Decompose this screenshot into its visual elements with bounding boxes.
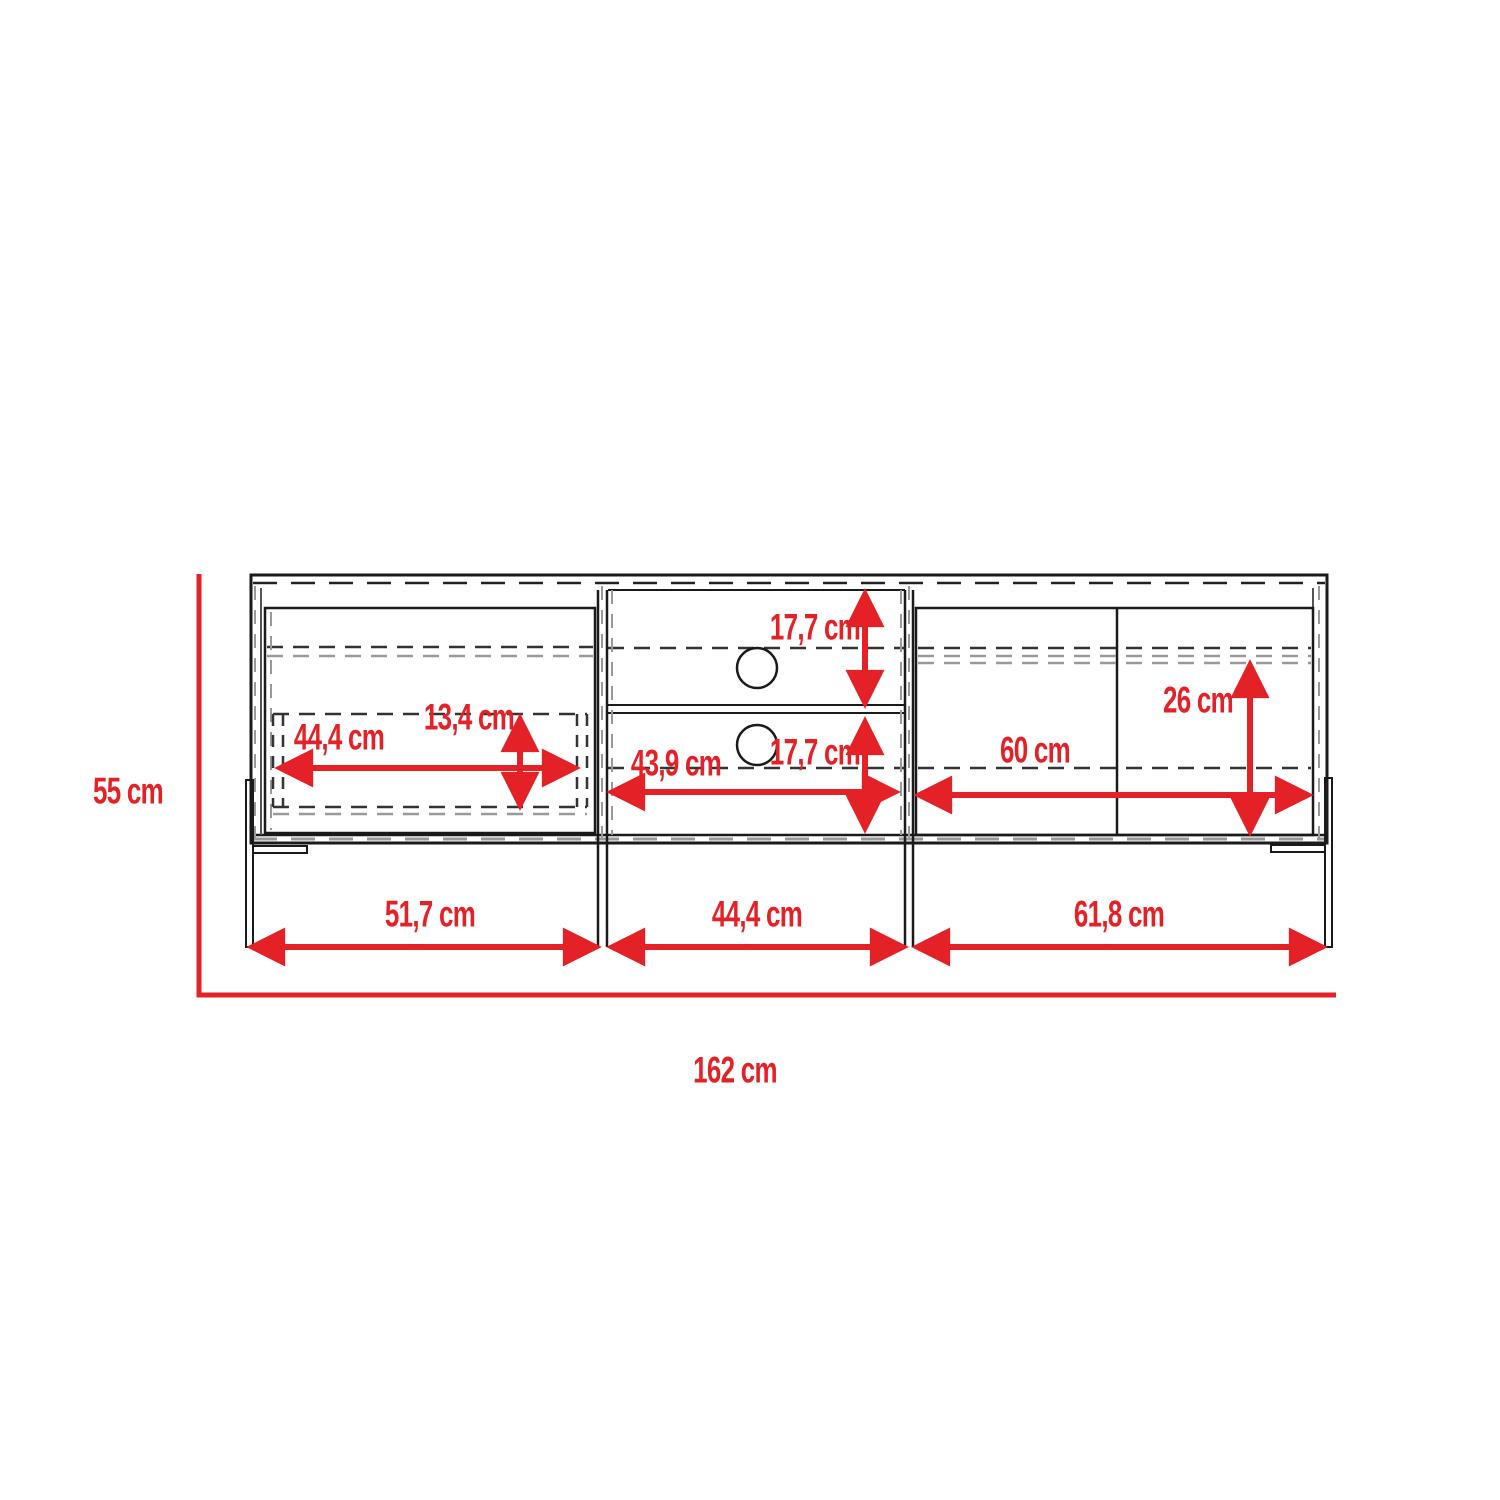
dim-right-cabinet-width-label: 60 cm bbox=[1000, 732, 1070, 769]
right-door-section bbox=[916, 608, 1313, 835]
dim-middle-section-width-label: 44,4 cm bbox=[712, 896, 802, 933]
dim-middle-bottom-height-label: 17,7 cm bbox=[770, 734, 860, 771]
dim-right-cabinet-height-label: 26 cm bbox=[1163, 682, 1233, 719]
dim-middle-top-height-label: 17,7 cm bbox=[770, 609, 860, 646]
middle-open-section bbox=[608, 590, 905, 835]
dim-right-section-width-label: 61,8 cm bbox=[1074, 896, 1164, 933]
technical-drawing bbox=[0, 0, 1500, 1500]
dim-middle-width-label: 43,9 cm bbox=[631, 745, 721, 782]
dim-total-height-label: 55 cm bbox=[93, 773, 163, 810]
right-back-foot bbox=[1271, 845, 1325, 852]
furniture-dimension-diagram: 55 cm 162 cm 51,7 cm 44,4 cm 61,8 cm 44,… bbox=[0, 0, 1500, 1500]
left-back-foot bbox=[253, 846, 307, 853]
cable-hole-top bbox=[737, 648, 777, 688]
dim-total-width-label: 162 cm bbox=[693, 1052, 777, 1089]
dim-left-drawer-width-label: 44,4 cm bbox=[294, 719, 384, 756]
dim-left-drawer-height-label: 13,4 cm bbox=[424, 699, 514, 736]
dim-left-section-width-label: 51,7 cm bbox=[385, 896, 475, 933]
right-door-panels bbox=[916, 608, 1313, 835]
